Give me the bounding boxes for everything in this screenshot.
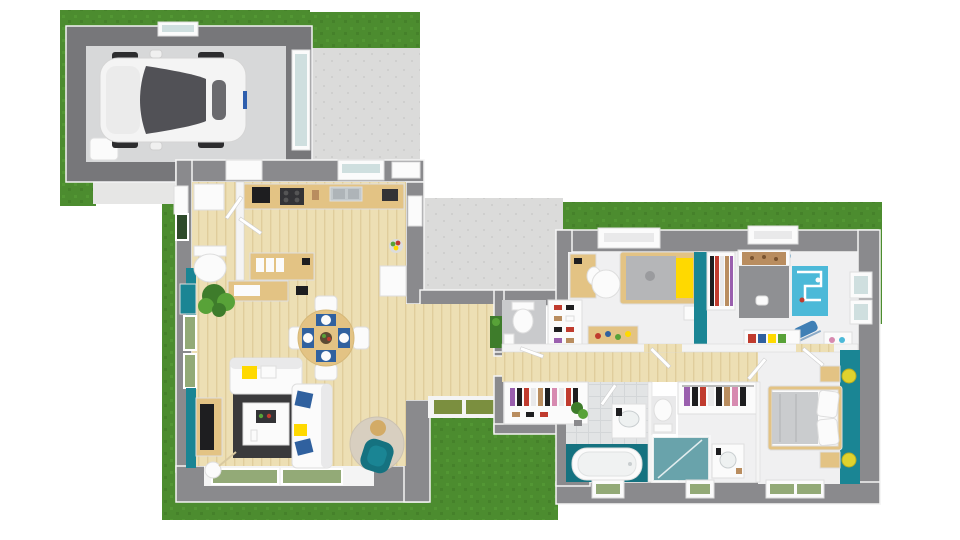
floor-lamp-shade bbox=[205, 462, 221, 478]
toilet-bowl-2 bbox=[513, 309, 533, 333]
entry-cabinet bbox=[194, 184, 224, 210]
dining-chair bbox=[353, 327, 369, 349]
shoe-closet bbox=[548, 300, 582, 348]
laptop bbox=[296, 286, 308, 295]
garage-access-door bbox=[226, 160, 262, 180]
terrace-window bbox=[408, 196, 422, 226]
sofa-backrest-2 bbox=[321, 384, 332, 468]
coffee-machine bbox=[252, 187, 270, 203]
garage-window-glass bbox=[162, 25, 194, 32]
white-cabinet bbox=[380, 266, 406, 296]
door-mat-2 bbox=[466, 400, 494, 414]
kid2-duvet bbox=[739, 266, 789, 318]
plant-pot bbox=[574, 420, 582, 426]
wall-north bbox=[176, 160, 424, 182]
side-stool bbox=[370, 420, 386, 436]
bathtub-inner bbox=[578, 452, 636, 476]
master-south-glass-1 bbox=[770, 484, 794, 494]
door-mat-1 bbox=[434, 400, 462, 414]
kid2-door-opening bbox=[796, 344, 834, 352]
toy-on-bed bbox=[645, 271, 655, 281]
small-appliance bbox=[382, 189, 398, 201]
candle bbox=[251, 430, 257, 441]
wall-southeast-step bbox=[404, 400, 430, 502]
entry-window bbox=[174, 186, 188, 214]
kid-bed-yellow-pillow bbox=[676, 258, 693, 298]
nightstand-1 bbox=[820, 366, 840, 382]
toy-on-bed-2 bbox=[756, 296, 768, 305]
kitchen-window-2 bbox=[392, 162, 420, 178]
kid1-door-opening bbox=[644, 344, 682, 352]
car-rear-window bbox=[212, 80, 226, 120]
master-basin bbox=[720, 452, 736, 468]
bath-south-glass bbox=[596, 484, 620, 494]
kid2-north-window-glass bbox=[754, 231, 792, 239]
master-partition bbox=[756, 382, 760, 482]
hallway-floor bbox=[406, 304, 502, 400]
lawn-above-driveway bbox=[303, 12, 420, 50]
west-window-1 bbox=[184, 316, 196, 350]
garage-door-glass bbox=[295, 54, 307, 146]
pillow-2 bbox=[817, 418, 840, 446]
east-window-2-glass bbox=[854, 304, 868, 320]
car-mirror bbox=[150, 142, 162, 150]
nightstand-2 bbox=[820, 452, 840, 468]
jar bbox=[312, 190, 319, 200]
wc-hall bbox=[502, 300, 546, 348]
bottles bbox=[616, 408, 622, 416]
ball-lamp-2 bbox=[842, 453, 856, 467]
garage bbox=[66, 22, 312, 182]
ball-lamp-1 bbox=[842, 369, 856, 383]
front-door bbox=[176, 214, 188, 240]
sliding-door-glass-2 bbox=[282, 469, 342, 484]
teal-wall-living bbox=[186, 388, 196, 468]
wing-wall-east bbox=[858, 230, 880, 504]
east-window-1-glass bbox=[854, 276, 868, 294]
kid1-north-window-glass bbox=[604, 233, 654, 242]
master-bathroom bbox=[712, 444, 744, 478]
kitchen-window-glass bbox=[342, 164, 380, 173]
white-cushion bbox=[261, 366, 276, 378]
floor-plan-render bbox=[0, 0, 960, 540]
yellow-cushion bbox=[242, 366, 257, 379]
west-window-2 bbox=[184, 354, 196, 388]
shoe-closet-floor bbox=[548, 300, 582, 348]
car-license-plate bbox=[243, 91, 247, 109]
yellow-cushion-2 bbox=[294, 424, 307, 436]
toilet-bowl-3 bbox=[654, 399, 672, 421]
terrace bbox=[424, 198, 563, 294]
pillow-1 bbox=[816, 390, 839, 418]
flat-tv bbox=[200, 404, 214, 450]
white-round-rug bbox=[592, 270, 620, 298]
floor-plan-svg bbox=[0, 0, 960, 540]
cooktop bbox=[280, 188, 304, 205]
play-mat bbox=[792, 266, 828, 316]
driveway bbox=[303, 48, 420, 174]
binders bbox=[234, 285, 260, 296]
toilet-tank-3 bbox=[654, 424, 672, 432]
sliding-door-glass-1 bbox=[212, 469, 278, 484]
car-hood bbox=[106, 66, 140, 134]
teal-sideboard bbox=[180, 284, 196, 314]
toilet-bowl bbox=[194, 254, 226, 282]
shower-south-glass bbox=[690, 484, 710, 494]
car-mirror bbox=[150, 50, 162, 58]
white-car bbox=[100, 50, 247, 150]
walk-in-closet bbox=[678, 382, 758, 414]
master-south-glass-2 bbox=[797, 484, 821, 494]
teal-partition-wall bbox=[694, 252, 707, 350]
coffee-table bbox=[243, 403, 289, 445]
car-roof-glass bbox=[140, 66, 206, 134]
